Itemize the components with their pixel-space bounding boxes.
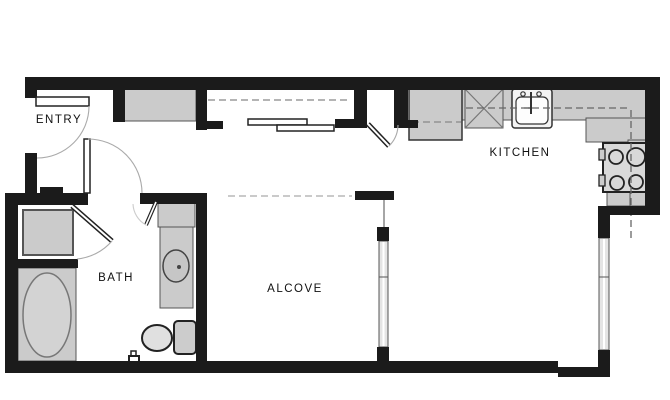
kitchen-door-arc — [389, 125, 398, 146]
floor-plan: ENTRY BATH ALCOVE KITCHEN — [0, 0, 670, 400]
refrigerator — [409, 88, 462, 140]
vanity-door-arc — [133, 204, 146, 225]
wall-entry-left-lower — [25, 153, 37, 193]
wall-right-lower-a — [598, 206, 610, 238]
vanity-sink-drain — [177, 265, 181, 269]
wall-bottom — [5, 361, 558, 373]
kitchen-counter-below-range — [607, 192, 648, 206]
alcove-label: ALCOVE — [267, 283, 323, 295]
range-knob-top — [599, 149, 605, 160]
range-knob-bottom — [599, 175, 605, 186]
range — [599, 143, 647, 192]
wall-hall — [354, 90, 367, 123]
vanity-door-leaf-inner — [146, 202, 156, 225]
kitchen-counter-corner — [586, 118, 648, 142]
alcove-window-post-top — [377, 227, 389, 241]
toilet-tank — [174, 321, 196, 354]
wall-closet-right-foot — [196, 121, 223, 129]
wall-closet-left-stub — [113, 90, 125, 122]
wall-entry-left-stub — [25, 88, 37, 98]
bathtub-basin — [23, 273, 71, 357]
wall-top — [25, 77, 658, 90]
wall-step — [608, 206, 650, 215]
fixtures — [18, 88, 648, 365]
alcove-window-post-bottom — [377, 347, 389, 363]
wall-hall-foot — [335, 119, 367, 128]
sliding-door-panel-1 — [248, 119, 307, 125]
wall-bath-alcove — [196, 193, 207, 365]
room-labels: ENTRY BATH ALCOVE KITCHEN — [36, 114, 551, 295]
floor-plan-drawing: ENTRY BATH ALCOVE KITCHEN — [0, 0, 670, 400]
hall-door-arc — [88, 139, 142, 193]
wall-right-upper — [645, 77, 660, 215]
sliding-door-panel-2 — [277, 125, 334, 131]
washer — [23, 210, 73, 255]
bath-door-leaf-inner — [72, 206, 112, 241]
wall-washer — [18, 259, 78, 268]
walls — [5, 77, 660, 377]
bath-label: BATH — [98, 272, 134, 284]
kitchen-door-leaf-inner — [368, 124, 389, 146]
bath-door-arc — [77, 241, 112, 259]
wall-alcove-stub — [355, 191, 394, 200]
toilet-bowl — [142, 325, 172, 351]
windows — [379, 200, 609, 350]
entry-door-leaf — [36, 97, 89, 106]
wall-entry-bottom — [5, 193, 88, 205]
wall-bottom-right — [558, 367, 610, 377]
wall-left-lower — [5, 193, 18, 372]
hall-door-leaf — [84, 139, 90, 193]
entry-label: ENTRY — [36, 114, 82, 126]
vanity-cabinet — [158, 200, 195, 227]
threshold — [40, 187, 63, 194]
vanity-sink — [163, 250, 189, 282]
kitchen-label: KITCHEN — [490, 147, 551, 159]
entry-closet — [122, 88, 196, 121]
